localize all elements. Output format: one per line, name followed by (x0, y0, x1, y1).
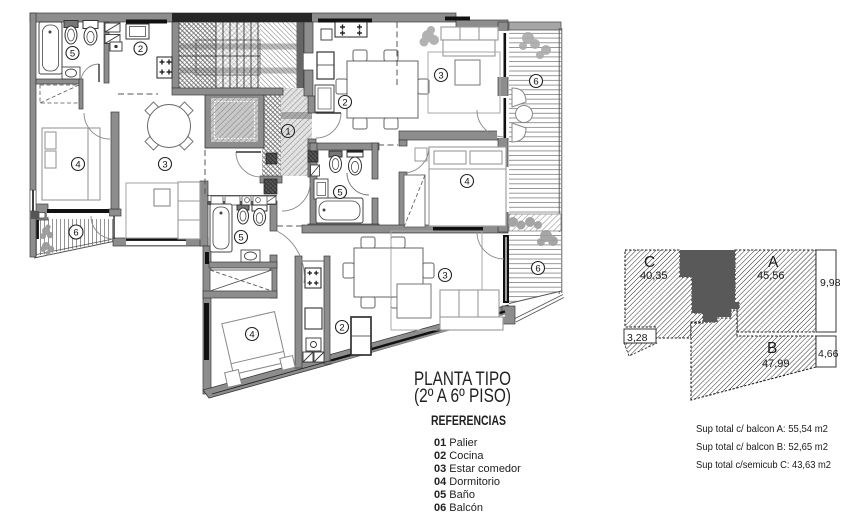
svg-text:A: A (768, 254, 779, 271)
svg-text:C: C (644, 254, 655, 271)
svg-text:3: 3 (438, 70, 443, 81)
svg-text:5: 5 (238, 232, 243, 243)
svg-text:03 Estar comedor: 03 Estar comedor (434, 463, 521, 475)
svg-text:6: 6 (533, 76, 538, 87)
svg-text:04 Dormitorio: 04 Dormitorio (434, 476, 500, 488)
svg-text:4,66: 4,66 (818, 348, 839, 360)
svg-text:9,98: 9,98 (820, 277, 841, 289)
svg-text:02 Cocina: 02 Cocina (434, 450, 484, 462)
svg-text:40,35: 40,35 (640, 270, 668, 282)
svg-text:5: 5 (337, 187, 342, 198)
svg-text:2: 2 (342, 97, 347, 108)
svg-text:3: 3 (162, 159, 167, 170)
svg-text:05 Baño: 05 Baño (434, 489, 475, 501)
svg-text:01 Palier: 01 Palier (434, 437, 478, 449)
svg-text:REFERENCIAS: REFERENCIAS (431, 413, 506, 428)
svg-text:3: 3 (442, 270, 447, 281)
svg-text:(2º A 6º PISO): (2º A 6º PISO) (414, 386, 511, 407)
svg-text:5: 5 (70, 48, 75, 59)
svg-text:45,56: 45,56 (757, 270, 785, 282)
svg-text:06 Balcón: 06 Balcón (434, 502, 483, 514)
svg-text:Sup total c/ balcon A: 55,54: Sup total c/ balcon A: 55,54 m2 (696, 423, 828, 435)
svg-text:Sup total c/ balcon B: 52,65: Sup total c/ balcon B: 52,65 m2 (696, 441, 828, 453)
svg-text:1: 1 (285, 126, 290, 137)
svg-text:3,28: 3,28 (627, 332, 648, 344)
svg-text:2: 2 (339, 322, 344, 333)
svg-text:6: 6 (73, 227, 78, 238)
svg-text:4: 4 (249, 329, 254, 340)
svg-text:2: 2 (138, 44, 143, 55)
svg-text:B: B (767, 340, 777, 357)
svg-text:47,99: 47,99 (762, 358, 790, 370)
svg-text:4: 4 (75, 159, 80, 170)
svg-text:Sup total c/semicub C: 43,63: Sup total c/semicub C: 43,63 m2 (696, 459, 831, 471)
svg-text:6: 6 (535, 263, 540, 274)
svg-text:4: 4 (464, 176, 469, 187)
